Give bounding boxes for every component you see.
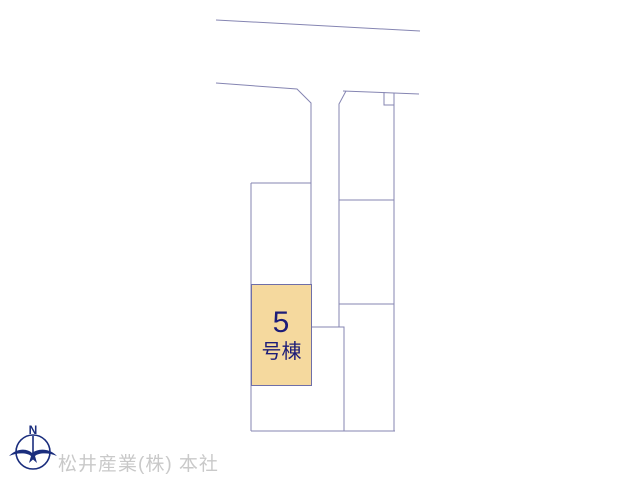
site-plan-drawing bbox=[0, 0, 640, 480]
right-column-west-edge bbox=[339, 91, 346, 327]
lot-5-suffix: 号棟 bbox=[262, 342, 302, 363]
inner-step-boundary bbox=[311, 327, 344, 431]
lot-5-highlight: 5 号棟 bbox=[251, 284, 312, 386]
right-column-north-edge bbox=[343, 91, 419, 94]
road-edge-top bbox=[216, 20, 420, 31]
compass-north-indicator: N bbox=[7, 421, 59, 473]
north-label: N bbox=[29, 423, 38, 437]
lot-5-number: 5 bbox=[273, 307, 291, 339]
company-watermark: 松井産業(株) 本社 bbox=[58, 449, 219, 476]
boundary-notch bbox=[384, 92, 394, 105]
compass-icon: N bbox=[7, 421, 59, 473]
site-plan-canvas: 5 号棟 N 松井産業(株) 本社 bbox=[0, 0, 640, 480]
